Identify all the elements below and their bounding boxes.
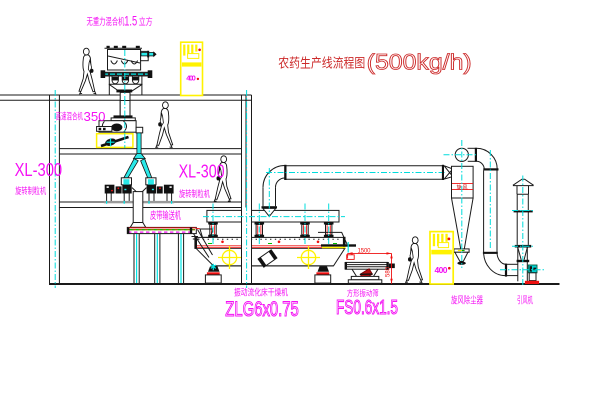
svg-text:1.5: 1.5 xyxy=(124,13,137,28)
svg-text:农药生产线流程图: 农药生产线流程图 xyxy=(278,56,365,71)
svg-text:旋转制粒机: 旋转制粒机 xyxy=(179,188,210,199)
svg-text:振动流化床干燥机: 振动流化床干燥机 xyxy=(234,286,288,297)
svg-text:FS0.6x1.5: FS0.6x1.5 xyxy=(336,297,398,319)
svg-text:350: 350 xyxy=(84,109,106,124)
svg-text:400: 400 xyxy=(186,73,196,82)
svg-text:皮带输送机: 皮带输送机 xyxy=(150,209,181,222)
svg-text:旋风除尘器: 旋风除尘器 xyxy=(451,295,483,307)
svg-text:立方: 立方 xyxy=(139,16,153,28)
svg-text:XL-300: XL-300 xyxy=(15,160,63,180)
svg-text:XL-300: XL-300 xyxy=(179,162,225,182)
svg-text:无重力混合机: 无重力混合机 xyxy=(87,16,125,28)
svg-text:1500: 1500 xyxy=(358,248,372,254)
svg-text:高速混合机: 高速混合机 xyxy=(56,111,84,122)
svg-text:引风机: 引风机 xyxy=(517,295,533,307)
svg-text:ZLG6x0.75: ZLG6x0.75 xyxy=(225,298,298,321)
svg-text:旋转制粒机: 旋转制粒机 xyxy=(15,185,46,196)
svg-text:(500kg/h): (500kg/h) xyxy=(367,50,472,75)
svg-text:400: 400 xyxy=(435,265,448,275)
svg-text:580: 580 xyxy=(386,266,392,277)
